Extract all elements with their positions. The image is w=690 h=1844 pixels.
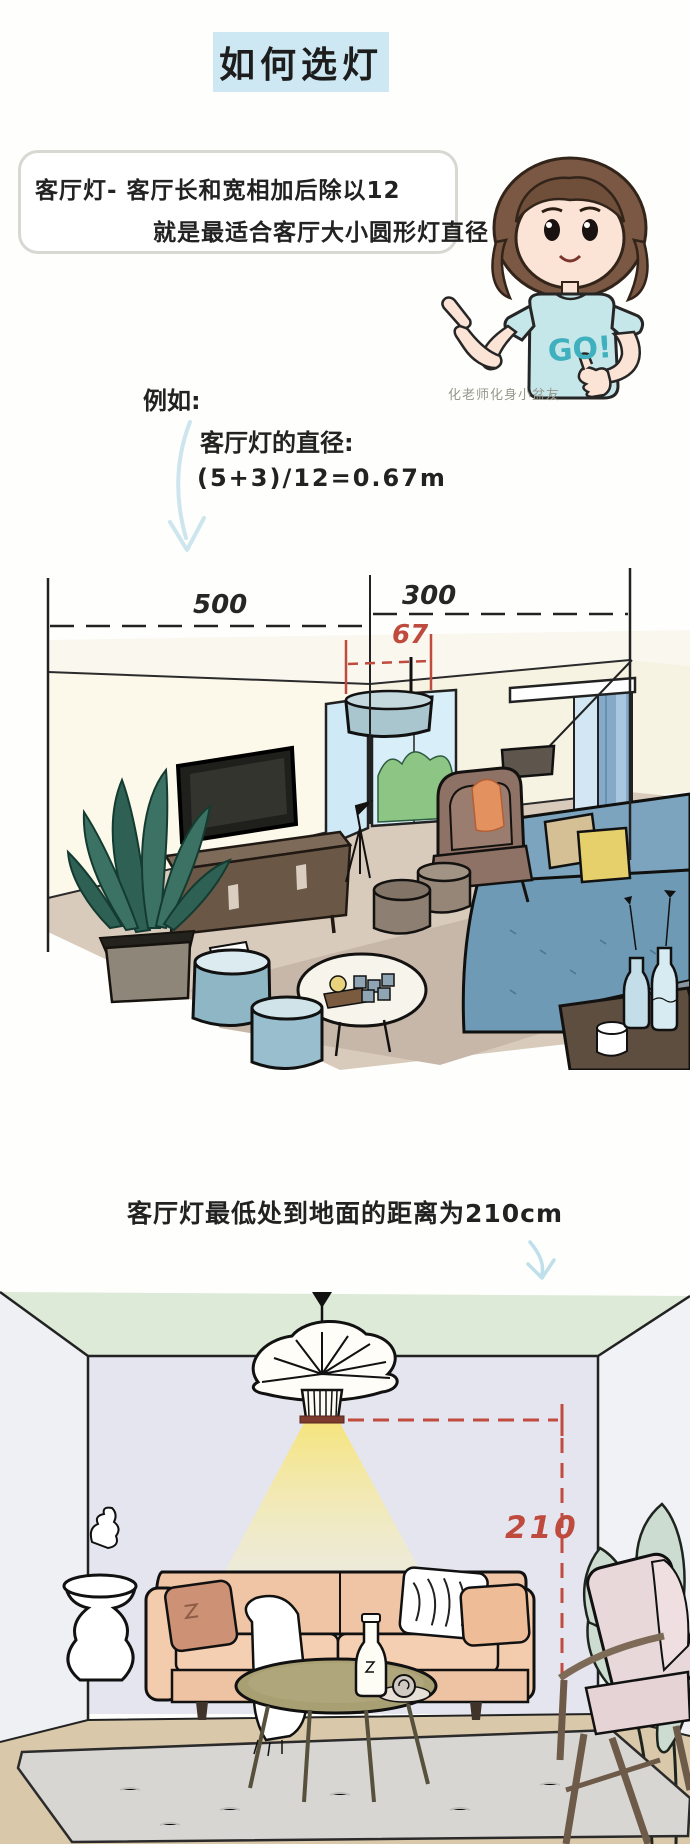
dim-label-room-depth: 300 — [402, 581, 456, 611]
dim-label-lamp-diameter: 67 — [392, 620, 428, 650]
shirt-text: GO! — [547, 330, 613, 369]
bubble-line-2: 就是最适合客厅大小圆形灯直径 — [35, 213, 455, 247]
page-title: 如何选灯 — [213, 32, 389, 92]
dim-label-room-width: 500 — [193, 590, 247, 620]
lamp-height-illustration — [0, 1290, 690, 1844]
infographic-page: 如何选灯 客厅灯- 客厅长和宽相加后除以12 就是最适合客厅大小圆形灯直径 GO… — [0, 0, 690, 1844]
example-label: 例如: — [143, 381, 201, 416]
down-arrow-icon — [160, 418, 230, 568]
teacher-mascot-illustration: GO! — [438, 146, 688, 400]
small-down-arrow-icon — [520, 1238, 566, 1286]
speech-bubble: 客厅灯- 客厅长和宽相加后除以12 就是最适合客厅大小圆形灯直径 — [18, 150, 458, 254]
example-formula: (5+3)/12=0.67m — [197, 464, 447, 492]
living-room-plan-illustration — [40, 560, 690, 1070]
dim-label-lamp-height: 210 — [505, 1510, 579, 1546]
mascot-caption: 化老师化身小盆友 — [448, 384, 618, 403]
lamp-height-caption: 客厅灯最低处到地面的距离为210cm — [0, 1194, 690, 1230]
bubble-line-1: 客厅灯- 客厅长和宽相加后除以12 — [35, 171, 455, 205]
